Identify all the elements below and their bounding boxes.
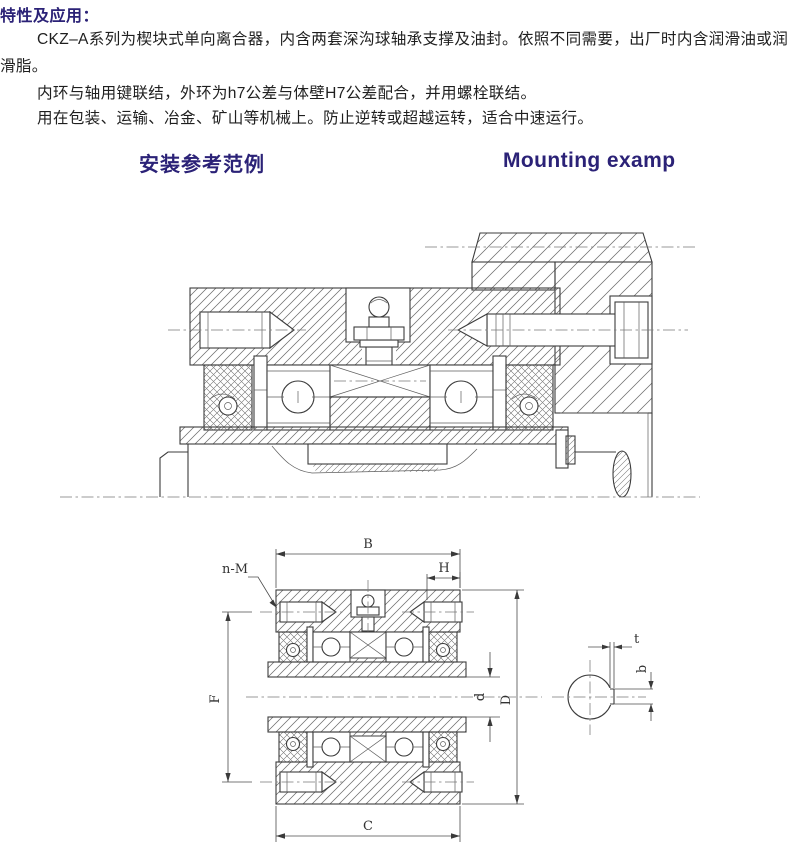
retainer-right <box>493 356 506 430</box>
bearing-row-bottom <box>279 732 457 767</box>
dim-label-C: C <box>363 819 373 834</box>
dim-label-t: t <box>634 632 640 647</box>
dim-label-b: b <box>635 665 650 673</box>
retainer-left <box>254 356 267 430</box>
dimensioned-drawing: B H n-M F d D <box>208 537 542 842</box>
bearing-left <box>267 365 330 430</box>
dim-label-B: B <box>363 537 373 552</box>
sprag-cage <box>330 365 430 430</box>
keyway-cross-section: t b <box>552 632 654 735</box>
shaft-key <box>308 444 447 464</box>
dim-label-nM: n-M <box>222 562 248 577</box>
dim-label-F: F <box>208 694 223 703</box>
catalog-page: 特性及应用： CKZ–A系列为楔块式单向离合器，内含两套深沟球轴承支撑及油封。依… <box>0 0 800 847</box>
shaft-break <box>613 451 631 497</box>
mounting-example-drawing <box>60 233 700 497</box>
bearing-right <box>430 365 493 430</box>
dim-label-d: d <box>473 693 488 701</box>
inner-ring <box>180 427 568 444</box>
dim-label-H: H <box>438 561 449 576</box>
technical-drawing: B H n-M F d D <box>0 0 800 847</box>
seal-right <box>506 365 553 430</box>
bearing-row-top <box>279 627 457 662</box>
seal-left <box>204 365 252 430</box>
dim-label-D: D <box>499 695 514 705</box>
